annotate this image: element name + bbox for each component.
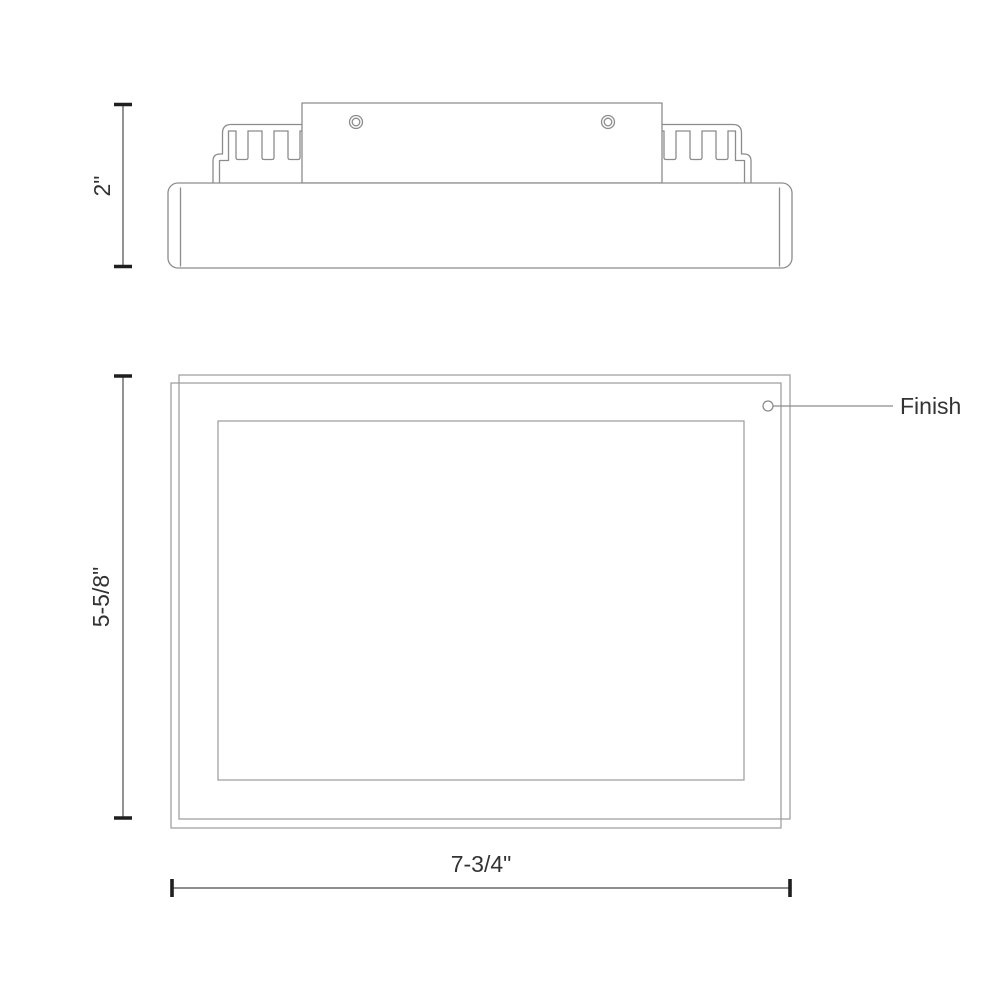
plan-width-dimension-label: 7-3/4" (451, 851, 512, 877)
mounting-clip-right (662, 125, 752, 185)
clip-inner-line (736, 131, 745, 184)
clip-outer-line (213, 125, 303, 185)
technical-drawing: 2" Finish 5-5/8" (0, 0, 1000, 1000)
plan-height-dimension: 5-5/8" (88, 376, 132, 818)
side-height-dimension: 2" (89, 105, 132, 267)
plan-view: Finish 5-5/8" 7-3/4" (88, 375, 961, 897)
plan-height-dimension-label: 5-5/8" (88, 567, 114, 628)
mounting-clip-left (213, 125, 303, 185)
clip-outer-line (662, 125, 752, 185)
drawing-canvas: 2" Finish 5-5/8" (0, 0, 1000, 1000)
plan-lens-aperture (218, 421, 744, 780)
plan-front-outline (179, 375, 790, 819)
side-view: 2" (89, 103, 792, 268)
heatsink-fin (716, 131, 728, 160)
plan-back-outline (171, 383, 781, 828)
heatsink-fin (262, 131, 274, 160)
finish-callout: Finish (763, 393, 961, 419)
finish-callout-label: Finish (900, 393, 961, 419)
plan-width-dimension: 7-3/4" (172, 851, 790, 897)
finish-callout-point (763, 401, 773, 411)
heatsink-fin (236, 131, 248, 160)
fixture-body (168, 183, 792, 268)
side-height-dimension-label: 2" (89, 176, 115, 197)
heatsink-fin (664, 131, 676, 160)
clip-inner-line (220, 131, 229, 184)
heatsink-fin (288, 131, 300, 160)
heatsink-fin (690, 131, 702, 160)
